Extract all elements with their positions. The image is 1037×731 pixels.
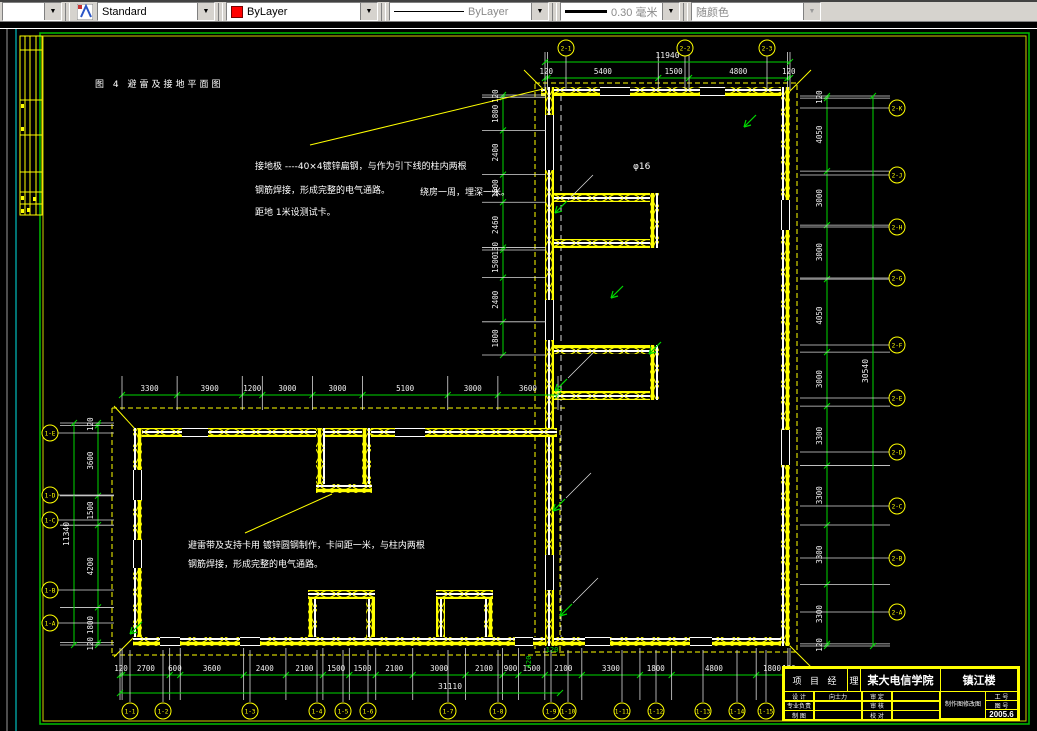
axis-bubble-label: 1-E <box>45 431 56 438</box>
signature-strip-text-mark <box>21 196 24 200</box>
partial-combo[interactable]: ▼ <box>2 2 62 21</box>
wall <box>541 637 790 646</box>
dim-label: 120 <box>86 417 95 431</box>
dim-label: 4200 <box>86 557 95 576</box>
titleblock-row-cell: 校 对 <box>862 710 892 720</box>
dim-label: 2400 <box>491 290 500 309</box>
axis-bubble-label: 1-A <box>45 621 56 628</box>
axis-bubble-label: 1-3 <box>245 709 256 716</box>
axis-bubble-label: 1-7 <box>443 709 454 716</box>
color-combo[interactable]: ByLayer ▼ <box>226 2 378 21</box>
toolbar: ▼ Standard ▼ ByLayer ▼ ByLayer ▼ <box>0 0 1037 22</box>
toolbar-separator <box>381 3 386 21</box>
axis-bubble-label: 1-D <box>45 493 56 500</box>
dim-label: 2100 <box>295 664 314 673</box>
titleblock-row-cell <box>892 701 940 711</box>
toolbar-separator <box>218 3 223 21</box>
titleblock-row-cell: 向士力 <box>814 691 862 701</box>
axis-bubble-label: 1-12 <box>649 709 664 716</box>
axis-bubble-label: 2-E <box>892 396 903 403</box>
roof-corner-tick <box>114 406 136 430</box>
door-opening <box>690 637 712 646</box>
dim-label: 120 <box>782 67 796 76</box>
cad-application-window: { "toolbar": { "style_value": "Standard"… <box>0 0 1037 731</box>
dim-label: 3600 <box>519 384 538 393</box>
door-opening <box>160 637 180 646</box>
signature-strip-text-mark <box>27 208 30 212</box>
titleblock-row-cell: 制 图 <box>784 710 814 720</box>
dim-label: 1800 <box>491 104 500 123</box>
titleblock-row-cell: 专业负责 <box>784 701 814 711</box>
dim-misc-label: 120 <box>546 646 559 654</box>
chevron-down-icon: ▼ <box>803 3 820 20</box>
dim-label: 2100 <box>475 664 494 673</box>
axis-bubble-label: 1-15 <box>759 709 774 716</box>
wall <box>308 590 375 599</box>
note1-line1: 接地极 ----40×4镀锌扁钢，与作为引下线的柱内两根 <box>255 162 467 173</box>
dim-label: 2460 <box>491 215 500 234</box>
axis-bubble-label: 1-6 <box>363 709 374 716</box>
dim-label: 3300 <box>602 664 621 673</box>
axis-bubble-label: 2-A <box>892 610 903 617</box>
dim-label: 2100 <box>385 664 404 673</box>
door-opening <box>545 300 554 340</box>
door-opening <box>585 637 610 646</box>
wall <box>362 428 371 488</box>
axis-bubble-label: 2-2 <box>680 46 691 53</box>
dim-label: 3000 <box>328 384 347 393</box>
titleblock-row-cell: 设 计 <box>784 691 814 701</box>
drawing-canvas[interactable]: 1205400150048001201194012040503000300040… <box>0 0 1037 731</box>
dim-label: 900 <box>504 664 518 673</box>
dim-total-label: 11940 <box>655 51 679 60</box>
dim-label: 2400 <box>256 664 275 673</box>
dim-label: 1500 <box>86 501 95 520</box>
wall <box>133 637 545 646</box>
chevron-down-icon[interactable]: ▼ <box>44 3 61 20</box>
door-opening <box>133 540 142 568</box>
axis-bubble-label: 2-J <box>892 173 903 180</box>
dim-label: 120 <box>815 90 824 104</box>
roof-corner-tick <box>114 635 136 657</box>
chevron-down-icon[interactable]: ▼ <box>662 3 679 20</box>
door-opening <box>515 637 533 646</box>
roof-outline-right <box>535 83 797 652</box>
wall <box>781 87 790 646</box>
axis-bubble-label: 1-11 <box>615 709 630 716</box>
axis-bubble-label: 2-K <box>892 106 903 113</box>
axis-bubble-label: 1-13 <box>696 709 711 716</box>
titleblock-header-mid: 理 <box>847 668 861 692</box>
lineweight-value: 0.30 毫米 <box>611 4 657 20</box>
axis-bubble-label: 2-B <box>892 556 903 563</box>
note-leader-line <box>310 89 543 145</box>
dim-label: 3300 <box>815 605 824 624</box>
axis-bubble-label: 2-D <box>892 450 903 457</box>
dim-label: 1800 <box>86 616 95 635</box>
wall <box>316 484 372 493</box>
door-opening <box>182 428 208 437</box>
wall <box>650 193 659 248</box>
note1-line2b: 绕房一周，埋深一米。 <box>420 188 510 199</box>
note-leader-line <box>245 494 332 533</box>
titleblock-row-cell <box>814 710 862 720</box>
dim-label: 4800 <box>705 664 724 673</box>
door-opening <box>545 115 554 170</box>
dim-label: 3300 <box>815 545 824 564</box>
wall <box>436 590 493 599</box>
axis-bubble-label: 2-F <box>892 343 903 350</box>
lineweight-sample <box>565 10 607 13</box>
titleblock-row-cell: 审 定 <box>862 691 892 701</box>
signature-strip <box>20 36 42 215</box>
wall <box>316 428 325 488</box>
axis-bubble-label: 1-8 <box>493 709 504 716</box>
dim-misc-label: 420 <box>525 656 533 669</box>
color-value: ByLayer <box>247 6 287 18</box>
door-opening <box>781 430 790 465</box>
chevron-down-icon[interactable]: ▼ <box>197 3 214 20</box>
dim-label: 1500 <box>665 67 684 76</box>
note1-phi: φ16 <box>633 162 650 173</box>
titleblock-maker-cell: 制作图 修改图 <box>940 691 986 719</box>
arrow-leader-line <box>573 578 598 603</box>
door-opening <box>700 87 725 96</box>
note2-line1: 避雷带及支持卡用 镀锌圆钢制作，卡间距一米，与柱内两根 <box>188 541 425 552</box>
titleblock-date-cell: 2005.6 <box>985 709 1018 719</box>
chevron-down-icon[interactable]: ▼ <box>531 3 548 20</box>
text-style-icon-glyph <box>77 4 93 20</box>
dim-label: 3000 <box>464 384 483 393</box>
wall <box>554 391 654 400</box>
axis-bubble-label: 1-5 <box>338 709 349 716</box>
arrow-leader-line <box>568 353 593 378</box>
note1-line2: 钢筋焊接，形成完整的电气通路。 <box>255 186 390 197</box>
inner-frame <box>43 36 1026 721</box>
dim-label: 3000 <box>430 664 449 673</box>
axis-bubble-label: 1-4 <box>312 709 323 716</box>
dim-total-label: 30540 <box>861 359 870 383</box>
signature-strip-text-mark <box>21 209 24 213</box>
dim-label: 600 <box>168 664 182 673</box>
axis-bubble-label: 2-G <box>892 276 903 283</box>
dim-label: 3000 <box>815 370 824 389</box>
figure-title: 图 4 避雷及接地平面图 <box>95 80 223 91</box>
linetype-sample <box>394 11 464 12</box>
chevron-down-icon[interactable]: ▼ <box>360 3 377 20</box>
toolbar-separator <box>65 3 70 21</box>
dim-label: 1200 <box>243 384 262 393</box>
dim-label: 1500 <box>354 664 373 673</box>
door-opening <box>133 470 142 500</box>
dim-label: 2100 <box>554 664 573 673</box>
dim-label: 3600 <box>86 451 95 470</box>
dim-label: 2400 <box>491 143 500 162</box>
title-block: 项 目 经 理 某大电信学院 镇江楼 制作图 修改图 工 号 图 号 2005.… <box>782 666 1020 721</box>
note1-line3: 距地 1米设测试卡。 <box>255 208 336 219</box>
signature-strip-text-mark <box>33 197 36 201</box>
axis-bubble-label: 1-14 <box>730 709 745 716</box>
axis-bubble-label: 2-H <box>892 225 903 232</box>
titleblock-drawing-name: 镇江楼 <box>940 668 1018 692</box>
linetype-value: ByLayer <box>468 6 508 18</box>
dim-label: 120 <box>114 664 128 673</box>
dim-label: 4050 <box>815 125 824 144</box>
text-style-combo[interactable]: Standard ▼ <box>97 2 215 21</box>
door-opening <box>545 555 554 590</box>
dim-label: 130 <box>491 242 500 256</box>
cad-viewport[interactable]: 1205400150048001201194012040503000300040… <box>0 0 1037 731</box>
dim-label: 1500 <box>491 254 500 273</box>
plotstyle-combo: 随颜色 ▼ <box>691 2 821 21</box>
titleblock-row-cell <box>892 710 940 720</box>
plotstyle-value: 随颜色 <box>696 4 729 20</box>
axis-bubble-label: 1-B <box>45 588 56 595</box>
toolbar-separator <box>552 3 557 21</box>
door-opening <box>395 428 425 437</box>
titleblock-header-left: 项 目 经 <box>784 668 848 692</box>
dim-label: 120 <box>815 638 824 652</box>
wall <box>554 193 654 202</box>
axis-bubble-label: 1-10 <box>561 709 576 716</box>
dim-label: 4050 <box>815 306 824 325</box>
titleblock-row-cell: 审 核 <box>862 701 892 711</box>
signature-strip-text-mark <box>21 104 24 108</box>
color-swatch-red <box>231 6 243 18</box>
text-style-icon[interactable] <box>75 3 95 21</box>
dim-label: 2700 <box>137 664 156 673</box>
axis-bubble-label: 1-C <box>45 518 56 525</box>
signature-strip-text-mark <box>21 127 24 131</box>
axis-bubble-label: 2-1 <box>561 46 572 53</box>
axis-bubble-label: 1-1 <box>125 709 136 716</box>
dim-label: 3900 <box>201 384 220 393</box>
wall <box>554 345 654 354</box>
dim-label: 3000 <box>278 384 297 393</box>
dim-label: 120 <box>539 67 553 76</box>
dim-label: 3000 <box>815 243 824 262</box>
door-opening <box>781 200 790 230</box>
axis-bubble-label: 1-9 <box>546 709 557 716</box>
note2-line2: 钢筋焊接，形成完整的电气通路。 <box>188 560 323 571</box>
dim-label: 3300 <box>141 384 160 393</box>
titleblock-row-cell <box>814 701 862 711</box>
dim-total-label: 11340 <box>62 522 71 546</box>
lineweight-combo[interactable]: 0.30 毫米 ▼ <box>560 2 680 21</box>
wall <box>554 239 654 248</box>
dim-label: 3300 <box>815 486 824 505</box>
linetype-combo[interactable]: ByLayer ▼ <box>389 2 549 21</box>
dim-label: 3300 <box>815 426 824 445</box>
dim-total-label: 31110 <box>438 682 462 691</box>
wall <box>133 428 142 646</box>
axis-bubble-label: 1-2 <box>158 709 169 716</box>
dim-label: 5100 <box>396 384 415 393</box>
dim-label: 1800 <box>491 329 500 348</box>
text-style-value: Standard <box>102 6 147 18</box>
dim-label: 120 <box>86 637 95 651</box>
door-opening <box>240 637 260 646</box>
dim-label: 5400 <box>594 67 613 76</box>
dim-label: 3600 <box>203 664 222 673</box>
door-opening <box>600 87 630 96</box>
axis-bubble-label: 2-3 <box>762 46 773 53</box>
wall <box>541 87 790 96</box>
toolbar-separator <box>683 3 688 21</box>
dim-label: 3000 <box>815 189 824 208</box>
axis-bubble-label: 2-C <box>892 504 903 511</box>
arrow-leader-line <box>566 473 591 498</box>
titleblock-project-name: 某大电信学院 <box>860 668 941 692</box>
dim-label: 4800 <box>729 67 748 76</box>
titleblock-row-cell <box>892 691 940 701</box>
